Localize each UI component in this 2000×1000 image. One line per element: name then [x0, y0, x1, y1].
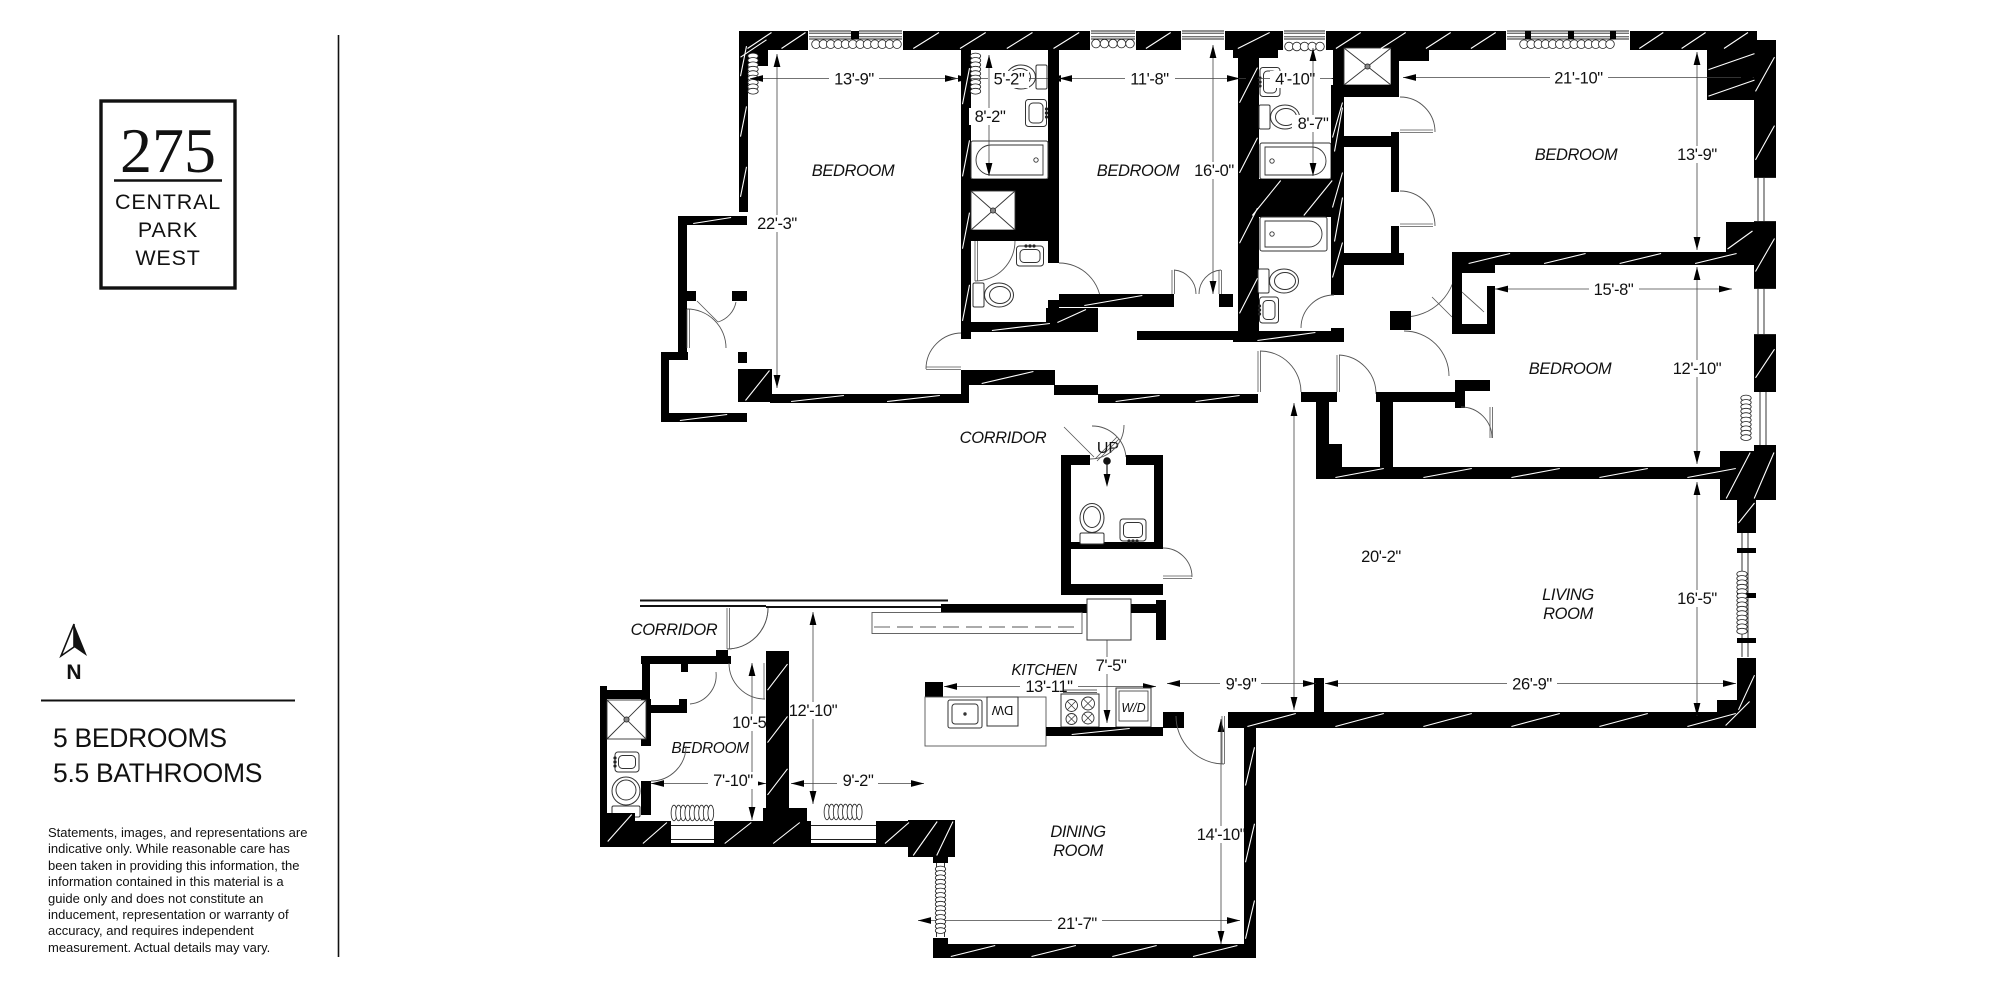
svg-text:guide only and does not consti: guide only and does not constitute an	[48, 891, 263, 906]
svg-text:13'-11": 13'-11"	[1025, 678, 1073, 696]
svg-text:PARK: PARK	[138, 218, 198, 242]
svg-text:9'-2": 9'-2"	[843, 772, 874, 790]
svg-text:BEDROOM: BEDROOM	[812, 162, 895, 180]
svg-text:accuracy, and requires indepen: accuracy, and requires independent	[48, 923, 254, 938]
svg-text:measurement. Actual details ma: measurement. Actual details may vary.	[48, 940, 270, 955]
svg-text:5.5 BATHROOMS: 5.5 BATHROOMS	[53, 758, 262, 788]
svg-text:275: 275	[120, 115, 216, 186]
svg-text:22'-3": 22'-3"	[757, 215, 797, 233]
svg-text:21'-7": 21'-7"	[1057, 915, 1097, 933]
svg-text:ROOM: ROOM	[1543, 605, 1593, 623]
svg-text:BEDROOM: BEDROOM	[1097, 162, 1180, 180]
svg-text:KITCHEN: KITCHEN	[1011, 662, 1077, 679]
svg-text:20'-2": 20'-2"	[1361, 548, 1401, 566]
svg-text:Statements, images, and repres: Statements, images, and representations …	[48, 825, 307, 840]
svg-text:16'-5": 16'-5"	[1677, 590, 1717, 608]
svg-text:DINING: DINING	[1050, 823, 1106, 841]
svg-text:BEDROOM: BEDROOM	[671, 740, 749, 757]
svg-text:4'-10": 4'-10"	[1275, 70, 1315, 88]
svg-text:26'-9": 26'-9"	[1512, 675, 1552, 693]
svg-text:21'-10": 21'-10"	[1554, 69, 1603, 87]
svg-text:information contained in this: information contained in this material i…	[48, 874, 284, 889]
svg-text:15'-8": 15'-8"	[1594, 281, 1634, 299]
svg-text:WEST: WEST	[135, 246, 200, 270]
svg-text:W/D: W/D	[1121, 701, 1145, 715]
svg-text:9'-9": 9'-9"	[1226, 675, 1257, 693]
svg-text:BEDROOM: BEDROOM	[1535, 146, 1618, 164]
svg-text:LIVING: LIVING	[1542, 586, 1594, 604]
svg-text:11'-8": 11'-8"	[1130, 70, 1169, 88]
svg-text:7'-10": 7'-10"	[713, 772, 753, 790]
svg-text:13'-9": 13'-9"	[834, 70, 874, 88]
svg-text:CORRIDOR: CORRIDOR	[960, 429, 1047, 447]
svg-text:5 BEDROOMS: 5 BEDROOMS	[53, 723, 227, 753]
svg-text:N: N	[66, 661, 81, 684]
svg-text:8'-7": 8'-7"	[1298, 115, 1329, 133]
svg-text:12'-10": 12'-10"	[789, 702, 838, 720]
svg-text:been taken in providing this i: been taken in providing this information…	[48, 858, 300, 873]
svg-text:CORRIDOR: CORRIDOR	[631, 621, 718, 639]
svg-text:ROOM: ROOM	[1053, 842, 1103, 860]
svg-text:14'-10": 14'-10"	[1197, 826, 1246, 844]
svg-text:indicative only. While reasona: indicative only. While reasonable care h…	[48, 841, 290, 856]
svg-text:13'-9": 13'-9"	[1677, 146, 1717, 164]
svg-text:5'-2": 5'-2"	[994, 70, 1025, 88]
svg-text:BEDROOM: BEDROOM	[1529, 360, 1612, 378]
svg-text:16'-0": 16'-0"	[1194, 162, 1234, 180]
svg-text:8'-2": 8'-2"	[975, 108, 1006, 126]
svg-text:CENTRAL: CENTRAL	[115, 190, 221, 214]
svg-text:inducement, representation or: inducement, representation or warranty o…	[48, 907, 289, 922]
svg-text:DW: DW	[991, 703, 1013, 718]
svg-text:12'-10": 12'-10"	[1673, 360, 1722, 378]
svg-text:7'-5": 7'-5"	[1096, 657, 1127, 675]
